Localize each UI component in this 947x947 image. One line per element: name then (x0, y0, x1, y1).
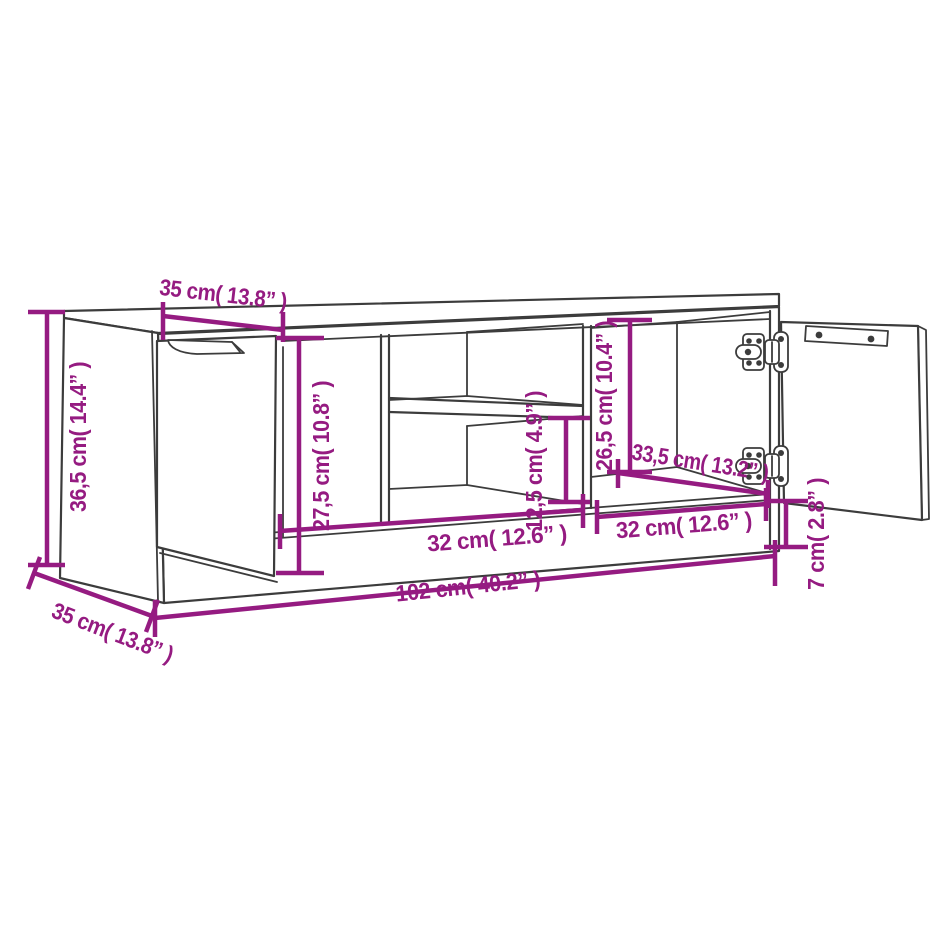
dim-label-plinth-height: 7 cm( 2.8” ) (803, 478, 829, 590)
strip-screw-left (816, 332, 823, 339)
dim-label-overall-depth: 35 cm( 13.8” ) (48, 597, 177, 667)
dim-label-door-height: 27,5 cm( 10.8” ) (308, 381, 334, 531)
dim-label-inner-compartment-height: 26,5 cm( 10.4” ) (591, 321, 617, 471)
strip-screw-right (868, 336, 875, 343)
left-door-panel (157, 336, 276, 576)
dim-label-overall-height: 36,5 cm( 14.4” ) (65, 362, 91, 512)
furniture-dimension-diagram: 36,5 cm( 14.4” ) 35 cm( 13.8” ) 27,5 cm(… (0, 0, 947, 947)
left-door-closed (157, 336, 276, 576)
screenshot-canvas: 36,5 cm( 14.4” ) 35 cm( 13.8” ) 27,5 cm(… (0, 0, 947, 947)
dim-label-open-shelf-height: 12,5 cm( 4.9” ) (521, 391, 547, 531)
door-hinge-top (736, 332, 788, 372)
